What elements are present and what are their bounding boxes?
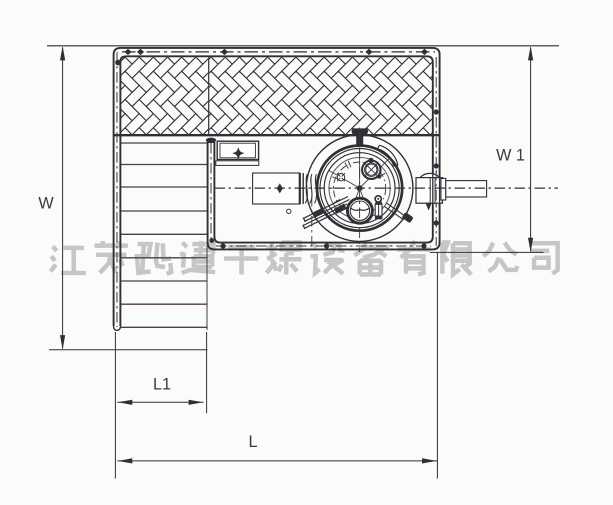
svg-text:L1: L1: [153, 376, 171, 394]
svg-text:W: W: [38, 194, 54, 212]
svg-text:L: L: [248, 433, 257, 451]
svg-text:W 1: W 1: [496, 146, 525, 164]
